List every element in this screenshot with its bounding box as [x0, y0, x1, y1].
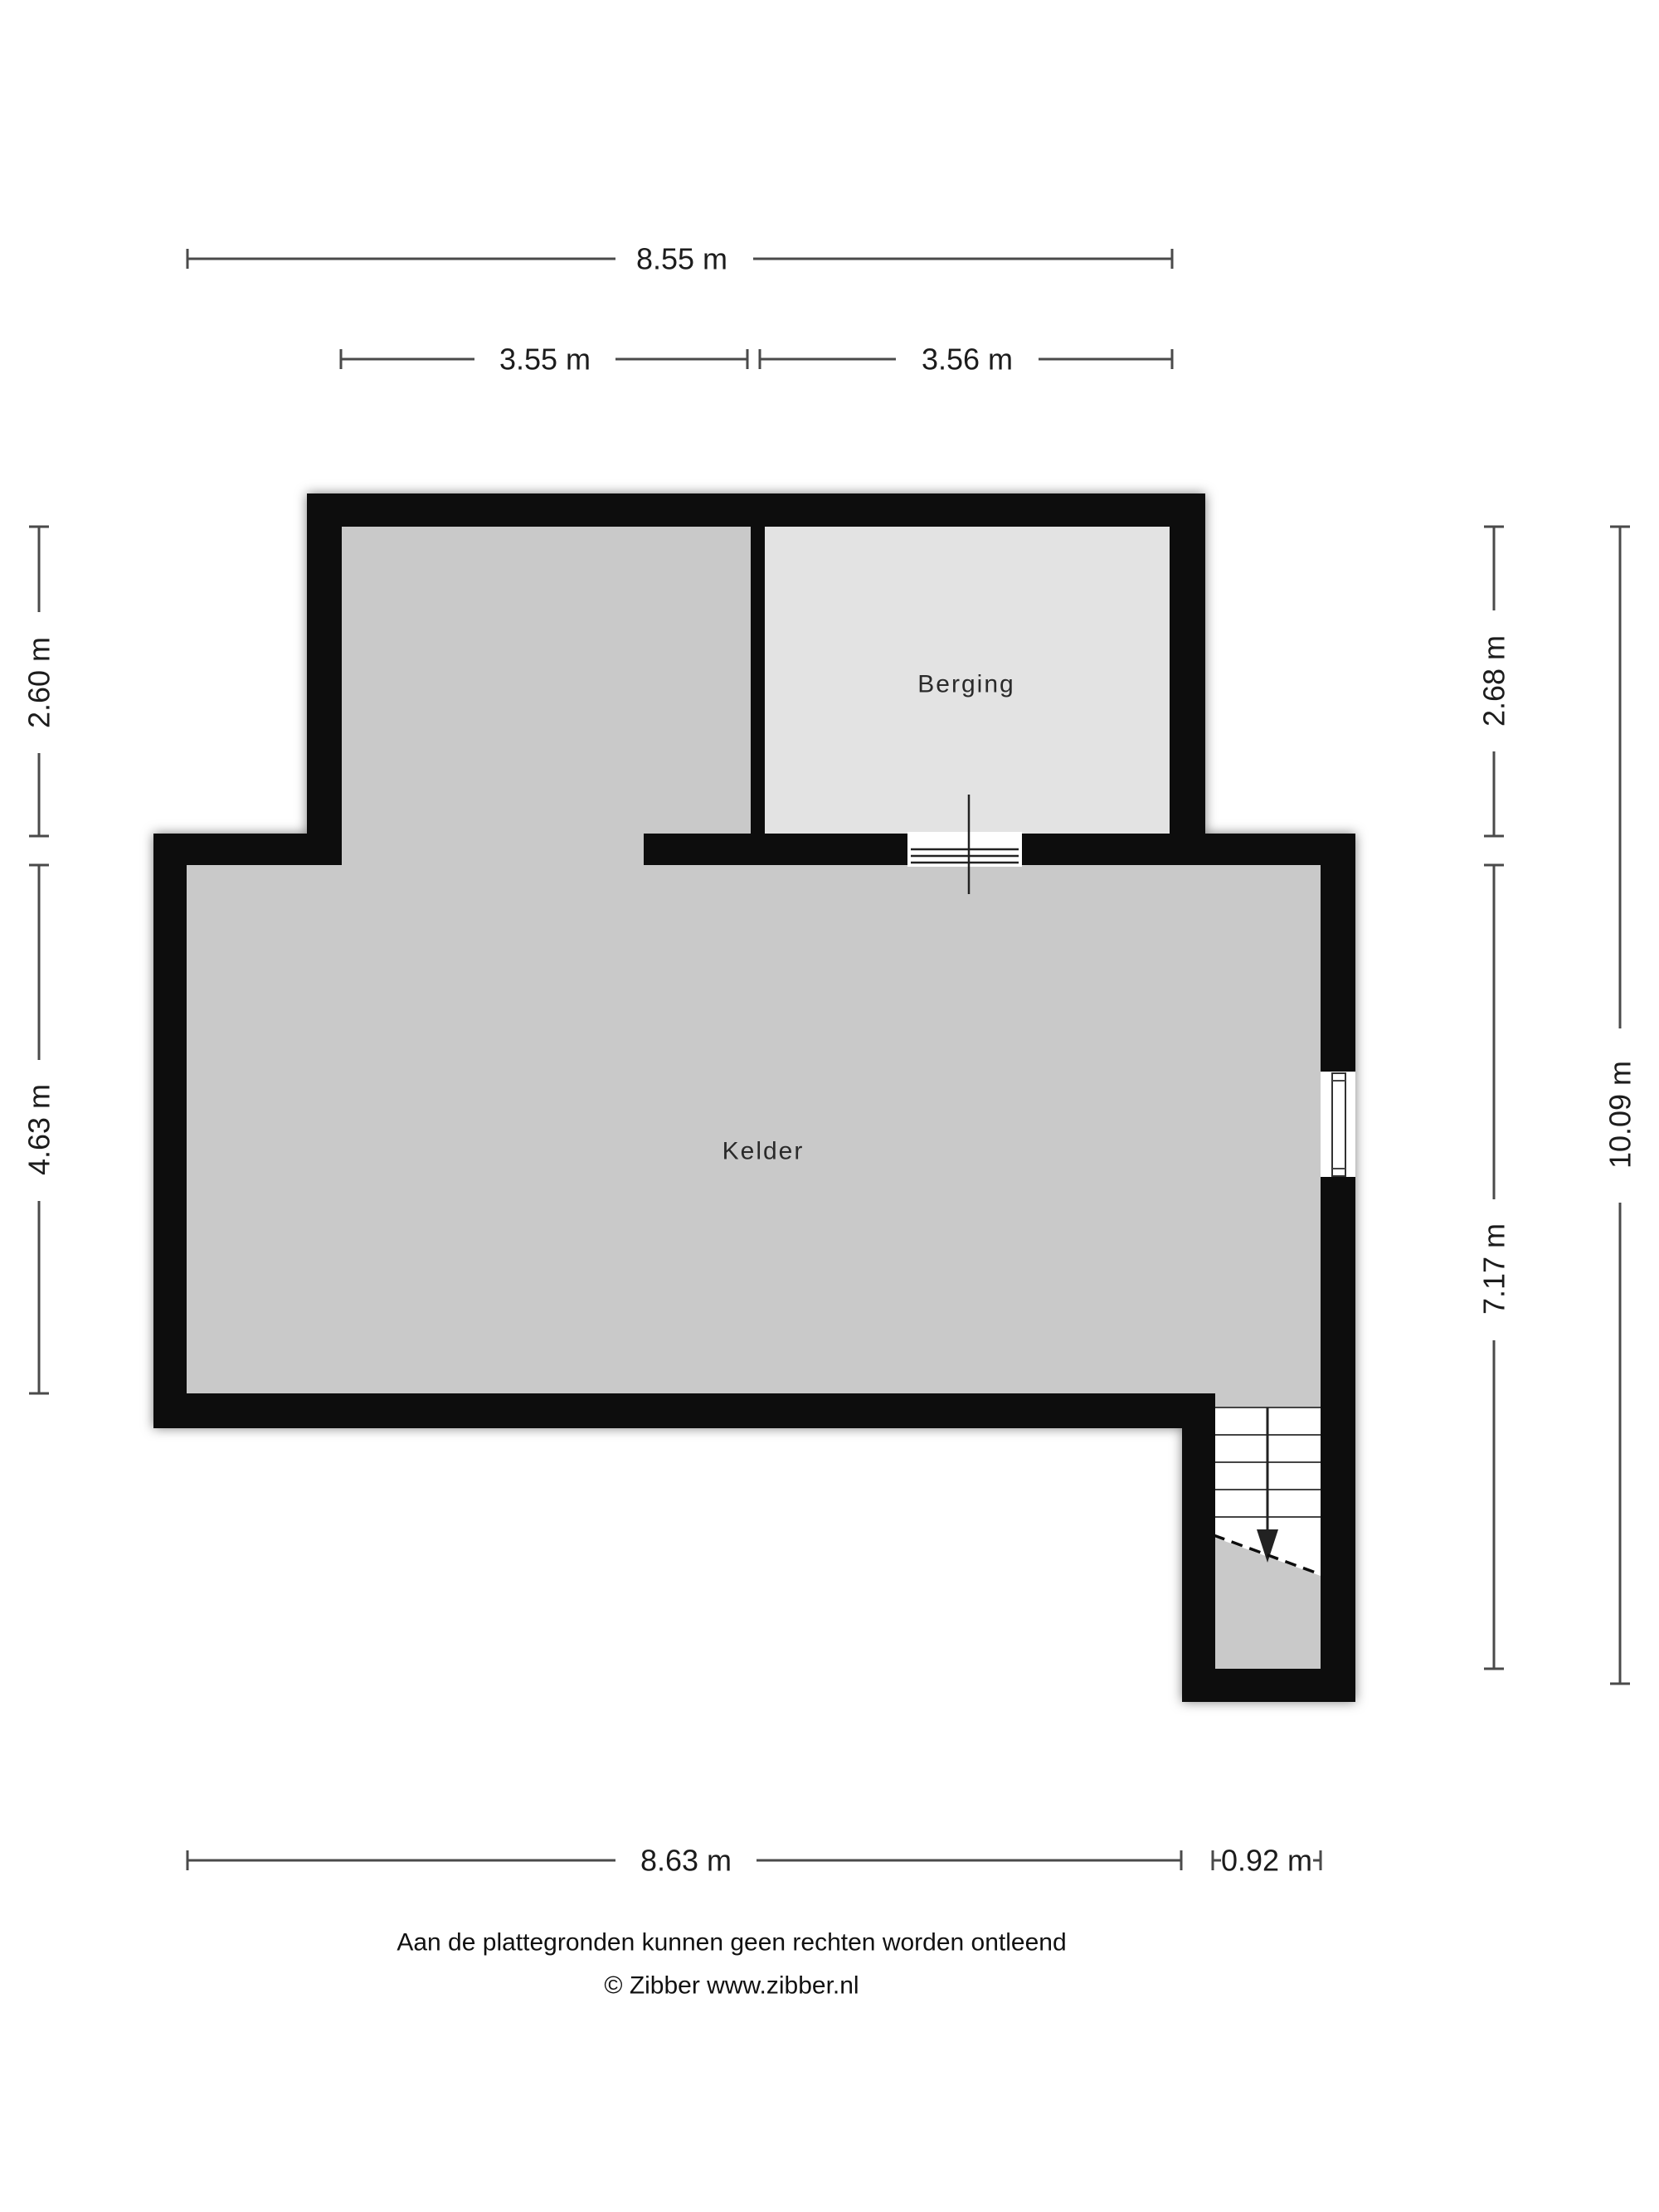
- floorplan-drawing: Berging Kelder 8.55 m 3.55 m 3.56 m: [0, 0, 1659, 2212]
- dim-label-top-total: 8.55 m: [636, 242, 727, 276]
- dim-label-bottom-width: 8.63 m: [640, 1844, 732, 1878]
- wall-right-below-window: [1321, 1177, 1355, 1702]
- dim-right-total-height: 10.09 m: [1603, 527, 1637, 1684]
- dim-label-left-lower-height: 4.63 m: [22, 1084, 56, 1175]
- room-label-berging: Berging: [917, 671, 1014, 698]
- dim-bottom-stair-width: 0.92 m: [1213, 1844, 1321, 1878]
- footer-disclaimer: Aan de plattegronden kunnen geen rechten…: [397, 1929, 1066, 1957]
- floorplan-page: Berging Kelder 8.55 m 3.55 m 3.56 m: [0, 0, 1659, 2212]
- dim-label-upper-right-width: 3.56 m: [922, 343, 1013, 377]
- wall-top: [307, 493, 1205, 527]
- dim-bottom-width: 8.63 m: [187, 1844, 1181, 1878]
- kelder-floor: [185, 863, 1321, 1395]
- room-label-kelder: Kelder: [722, 1138, 805, 1165]
- footer-credit: © Zibber www.zibber.nl: [604, 1972, 859, 2000]
- dim-right-upper-height: 2.68 m: [1477, 527, 1511, 836]
- dim-label-right-lower-height: 7.17 m: [1477, 1223, 1511, 1315]
- dim-left-upper-height: 2.60 m: [22, 527, 56, 836]
- dim-label-upper-left-width: 3.55 m: [499, 343, 591, 377]
- wall-upper-right: [1170, 493, 1205, 865]
- dim-top-total: 8.55 m: [187, 242, 1172, 276]
- wall-lower-left: [153, 834, 187, 1428]
- window-right: [1321, 1072, 1355, 1177]
- dim-left-lower-height: 4.63 m: [22, 865, 56, 1393]
- dim-label-right-total-height: 10.09 m: [1603, 1061, 1637, 1169]
- building: [153, 493, 1355, 1702]
- window-glazing: [1332, 1073, 1345, 1176]
- dim-label-right-upper-height: 2.68 m: [1477, 635, 1511, 727]
- wall-partition-berging: [751, 527, 765, 837]
- footer: Aan de plattegronden kunnen geen rechten…: [397, 1929, 1066, 2000]
- wall-upper-left: [307, 493, 342, 865]
- dim-upper-left-width: 3.55 m: [341, 343, 747, 377]
- wall-bottom-kelder: [153, 1393, 1215, 1428]
- dim-label-bottom-stair-width: 0.92 m: [1221, 1844, 1312, 1878]
- dim-upper-right-width: 3.56 m: [760, 343, 1172, 377]
- left-room-floor: [342, 527, 765, 868]
- wall-mid-right-of-door: [1022, 834, 1205, 865]
- wall-stair-bottom: [1182, 1669, 1355, 1702]
- wall-mid-left-of-door: [644, 834, 907, 865]
- wall-stairwell-left: [1182, 1393, 1215, 1702]
- dim-right-lower-height: 7.17 m: [1477, 865, 1511, 1669]
- wall-right-above-window: [1321, 834, 1355, 1072]
- dim-label-left-upper-height: 2.60 m: [22, 637, 56, 728]
